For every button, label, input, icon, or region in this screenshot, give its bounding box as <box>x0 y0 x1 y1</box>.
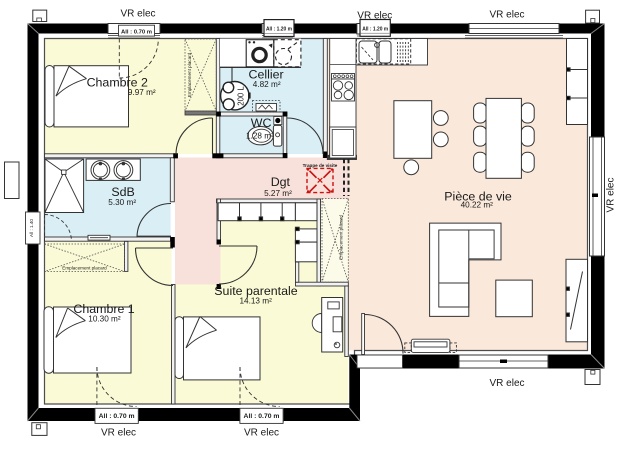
svg-text:5.30 m²: 5.30 m² <box>108 198 136 207</box>
svg-text:VR elec: VR elec <box>489 378 524 389</box>
svg-text:Emplacement placard: Emplacement placard <box>339 215 344 260</box>
svg-text:5.27 m²: 5.27 m² <box>264 189 292 198</box>
svg-text:10.30 m²: 10.30 m² <box>88 315 121 324</box>
svg-text:All : 0.70 m: All : 0.70 m <box>99 413 135 420</box>
svg-text:All : 1.20 m: All : 1.20 m <box>362 27 388 33</box>
svg-text:VR elec: VR elec <box>606 177 617 212</box>
svg-text:9.97 m²: 9.97 m² <box>128 88 156 97</box>
svg-text:Emplacement placard: Emplacement placard <box>187 52 192 97</box>
svg-text:All : 1.40: All : 1.40 <box>29 219 34 237</box>
svg-text:VR elec: VR elec <box>120 8 155 19</box>
svg-text:40.22 m²: 40.22 m² <box>461 200 494 209</box>
svg-text:All : 0.70 m: All : 0.70 m <box>121 29 152 35</box>
svg-text:1.28 m²: 1.28 m² <box>246 132 274 141</box>
svg-text:All : 1.20 m: All : 1.20 m <box>266 27 292 33</box>
svg-text:VR elec: VR elec <box>244 428 279 439</box>
svg-text:VR elec: VR elec <box>489 10 524 21</box>
svg-text:Emplacement placard: Emplacement placard <box>62 266 107 271</box>
svg-text:VR elec: VR elec <box>101 428 136 439</box>
svg-text:SdB: SdB <box>111 185 134 199</box>
svg-text:200 L: 200 L <box>237 86 246 106</box>
svg-text:VR elec: VR elec <box>357 10 392 21</box>
svg-text:4.82 m²: 4.82 m² <box>253 80 281 89</box>
svg-text:Trappe de visite: Trappe de visite <box>303 163 338 168</box>
svg-text:14.13 m²: 14.13 m² <box>240 296 273 305</box>
svg-text:WC: WC <box>251 116 272 130</box>
svg-text:Dgt: Dgt <box>271 175 291 189</box>
svg-text:All : 0.70 m: All : 0.70 m <box>244 413 280 420</box>
